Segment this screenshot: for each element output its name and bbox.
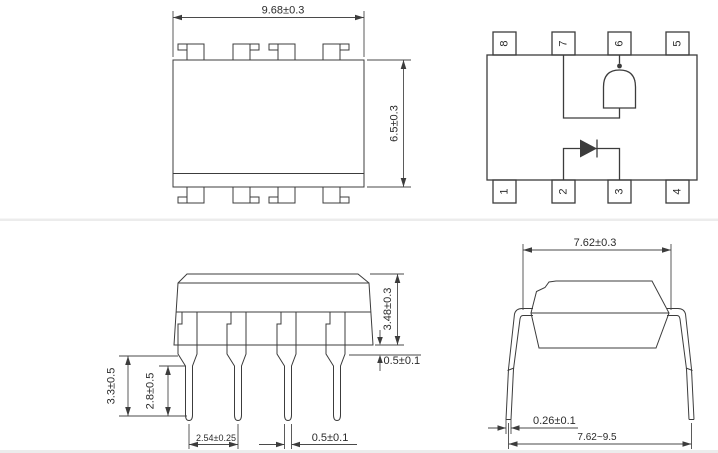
top-side-pins <box>178 44 349 60</box>
dim-row-spacing: 7.62±0.3 <box>523 237 671 310</box>
pin-label-8: 8 <box>498 40 510 46</box>
detector-dome <box>604 70 636 108</box>
dim-lead-width: 0.5±0.1 <box>259 424 357 449</box>
dim-label-lead-width: 0.5±0.1 <box>312 432 349 444</box>
diode-anode-triangle <box>580 140 597 158</box>
side-right-leg <box>667 309 694 420</box>
led-diode-symbol <box>564 140 620 181</box>
pin-label-1: 1 <box>498 188 510 194</box>
photodetector-symbol <box>564 55 636 118</box>
side-body-outline <box>531 281 669 348</box>
dim-standoff: 0.5±0.1 <box>349 330 421 371</box>
pin-label-7: 7 <box>557 40 569 46</box>
front-view: 3.48±0.3 0.5±0.1 3.3±0.5 2.8±0.5 <box>105 274 421 449</box>
dim-label-lead-thickness: 0.26±0.1 <box>533 415 576 427</box>
dim-lead-inner: 2.8±0.5 <box>144 366 185 416</box>
package-outline-drawing: 9.68±0.3 6.5±0.3 8 7 6 5 1 <box>0 0 718 453</box>
bottom-side-pins <box>178 187 349 203</box>
package-body-outline <box>173 60 364 187</box>
pin-label-6: 6 <box>613 40 625 46</box>
dim-label-body-height: 6.5±0.3 <box>388 105 400 142</box>
side-view: 7.62±0.3 0.26±0.1 7.62~9.5 <box>488 237 694 449</box>
dim-label-front-body-height: 3.48±0.3 <box>382 288 394 331</box>
pin-label-2: 2 <box>557 188 569 194</box>
dim-label-body-width: 9.68±0.3 <box>262 5 305 17</box>
schematic-pins-bottom: 1 2 3 4 <box>493 180 689 203</box>
diode-wire <box>564 149 620 181</box>
top-view: 9.68±0.3 6.5±0.3 <box>173 5 411 204</box>
pin-label-4: 4 <box>671 188 683 194</box>
dim-label-lead-inner: 2.8±0.5 <box>144 373 156 410</box>
junction-dot <box>617 64 622 69</box>
pin-label-3: 3 <box>613 188 625 194</box>
schematic-pins-top: 8 7 6 5 <box>493 32 689 55</box>
dim-label-standoff: 0.5±0.1 <box>384 355 421 367</box>
pin-label-5: 5 <box>671 40 683 46</box>
dim-front-body-height: 3.48±0.3 <box>370 274 404 345</box>
dim-body-height: 6.5±0.3 <box>367 60 411 187</box>
front-body-outline <box>174 274 373 345</box>
dim-label-lead-length: 3.3±0.5 <box>105 368 117 405</box>
side-left-leg <box>506 309 533 420</box>
front-leads <box>178 312 345 421</box>
page-divider <box>0 219 718 222</box>
dim-label-row-spacing: 7.62±0.3 <box>574 237 617 249</box>
dim-label-lead-spread: 7.62~9.5 <box>577 432 617 443</box>
dim-label-lead-pitch: 2.54±0.25 <box>196 433 236 443</box>
drawing-canvas: 9.68±0.3 6.5±0.3 8 7 6 5 1 <box>0 0 718 453</box>
dim-lead-pitch: 2.54±0.25 <box>189 424 238 449</box>
dim-lead-thickness: 0.26±0.1 <box>488 415 578 434</box>
pin-diagram: 8 7 6 5 1 2 3 4 <box>487 32 697 203</box>
